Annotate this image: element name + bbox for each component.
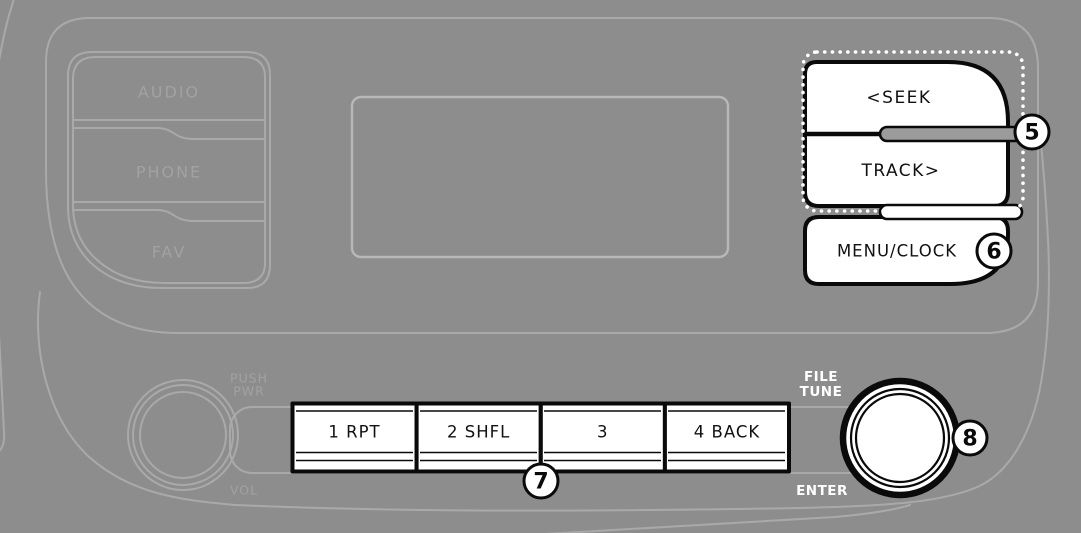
callout-6-number: 6	[986, 240, 1001, 265]
seek-button-label[interactable]: <SEEK	[866, 88, 931, 108]
callout-6: 6	[977, 234, 1011, 268]
track-button-label[interactable]: TRACK>	[860, 161, 940, 181]
file-label: FILE	[804, 369, 838, 385]
preset-key-3-label: 3	[597, 423, 609, 442]
callout-8: 8	[953, 421, 987, 455]
enter-label: ENTER	[796, 483, 848, 499]
phone-button[interactable]: PHONE	[136, 163, 202, 182]
preset-key-3[interactable]: 3	[541, 404, 665, 472]
preset-key-1[interactable]: 1 RPT	[293, 404, 417, 472]
menu-clock-label: MENU/CLOCK	[837, 242, 957, 261]
audio-button[interactable]: AUDIO	[138, 83, 200, 102]
phone-button-label: PHONE	[136, 163, 202, 182]
car-audio-diagram: AUDIO PHONE FAV PUSH PWR VOL <SEEK TRACK…	[0, 0, 1081, 533]
callout-5: 5	[1015, 115, 1049, 149]
callout-8-number: 8	[962, 427, 977, 452]
callout-7: 7	[524, 464, 558, 498]
preset-key-4-label: 4 BACK	[694, 423, 761, 442]
callout-5-number: 5	[1024, 121, 1039, 146]
tune-label: TUNE	[800, 384, 843, 400]
file-tune-knob[interactable]	[843, 381, 957, 495]
preset-key-2-label: 2 SHFL	[447, 423, 510, 442]
fav-button-label: FAV	[152, 243, 187, 262]
callout-7-number: 7	[533, 470, 548, 495]
vol-label: VOL	[230, 483, 258, 498]
preset-key-row: 1 RPT 2 SHFL 3 4 BACK	[293, 404, 790, 472]
audio-button-label: AUDIO	[138, 83, 200, 102]
file-tune-knob-outer[interactable]	[843, 381, 957, 495]
preset-key-4[interactable]: 4 BACK	[665, 404, 789, 472]
fav-button[interactable]: FAV	[152, 243, 187, 262]
preset-key-1-label: 1 RPT	[328, 423, 380, 442]
pwr-label: PWR	[233, 384, 265, 399]
preset-key-2[interactable]: 2 SHFL	[417, 404, 541, 472]
